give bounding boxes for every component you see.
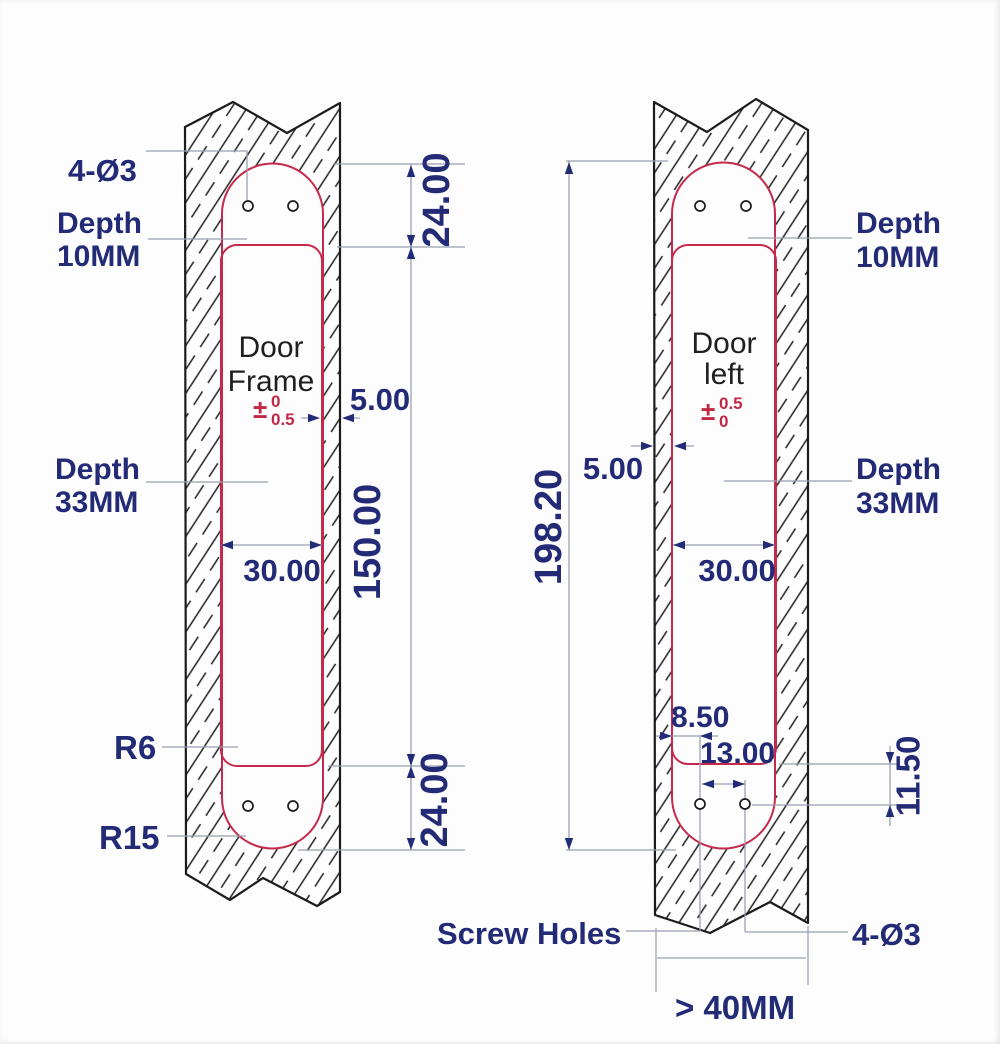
frame-mortise-outer-outline [222, 164, 323, 849]
frame-dim-top-offset: 24.00 [416, 152, 458, 247]
screw-hole [741, 201, 751, 211]
screw-hole [288, 801, 298, 811]
leaf-depth10-label-line1: Depth [856, 207, 941, 240]
screw-hole [695, 201, 705, 211]
door-frame-figure: 4-Ø3 Depth 10MM Depth 33MM R6 R15 Door F… [55, 102, 465, 906]
leaf-depth33-label-line1: Depth [856, 453, 941, 486]
leaf-part-name-line2: left [704, 358, 745, 391]
screw-hole [243, 201, 253, 211]
technical-drawing: 4-Ø3 Depth 10MM Depth 33MM R6 R15 Door F… [0, 0, 1000, 1044]
screw-hole [695, 799, 705, 809]
leaf-screw-holes-label: Screw Holes [437, 916, 621, 951]
frame-tolerance-sign: ± [253, 394, 267, 424]
screw-hole [243, 801, 253, 811]
leaf-holes-label: 4-Ø3 [852, 917, 921, 952]
frame-tolerance-upper: 0 [271, 392, 280, 411]
frame-holes-label: 4-Ø3 [68, 153, 137, 188]
door-leaf-figure: Door left Depth 10MM Depth 33MM 198.20 5… [437, 99, 941, 1026]
frame-dim-pocket-length: 150.00 [347, 484, 389, 600]
frame-part-name-line1: Door [238, 331, 303, 364]
leaf-depth10-label-line2: 10MM [856, 241, 939, 274]
leaf-dim-edge-margin: 5.00 [583, 451, 643, 486]
leaf-part-name-line1: Door [691, 327, 756, 360]
leaf-dim-min-thickness: > 40MM [675, 989, 795, 1026]
leaf-tolerance-lower: 0 [719, 412, 728, 431]
leaf-tolerance-sign: ± [701, 396, 715, 426]
frame-depth10-label-line1: Depth [57, 207, 142, 240]
frame-dim-bottom-offset: 24.00 [414, 752, 456, 847]
leaf-dim-mortise-length: 198.20 [528, 469, 570, 585]
leaf-dim-pocket-width: 30.00 [698, 553, 776, 588]
frame-depth33-label-line2: 33MM [55, 486, 138, 519]
leaf-depth33-label-line2: 33MM [856, 487, 939, 520]
frame-r15-label: R15 [99, 819, 160, 856]
frame-depth10-label-line2: 10MM [57, 240, 140, 273]
frame-dim-pocket-width: 30.00 [243, 553, 321, 588]
frame-depth33-label-line1: Depth [55, 453, 140, 486]
leaf-dim-hole-end-offset: 11.50 [890, 736, 927, 817]
frame-r6-label: R6 [114, 729, 156, 766]
frame-tolerance-lower: 0.5 [271, 410, 295, 429]
leaf-dim-hole-edge-offset: 8.50 [671, 701, 729, 734]
leaf-tolerance-upper: 0.5 [719, 394, 743, 413]
hinge-mortise-drawing-page: 4-Ø3 Depth 10MM Depth 33MM R6 R15 Door F… [0, 0, 1000, 1044]
screw-hole [740, 799, 750, 809]
leaf-dim-hole-spacing: 13.00 [700, 737, 775, 770]
frame-dim-edge-margin: 5.00 [350, 382, 410, 417]
screw-hole [288, 201, 298, 211]
